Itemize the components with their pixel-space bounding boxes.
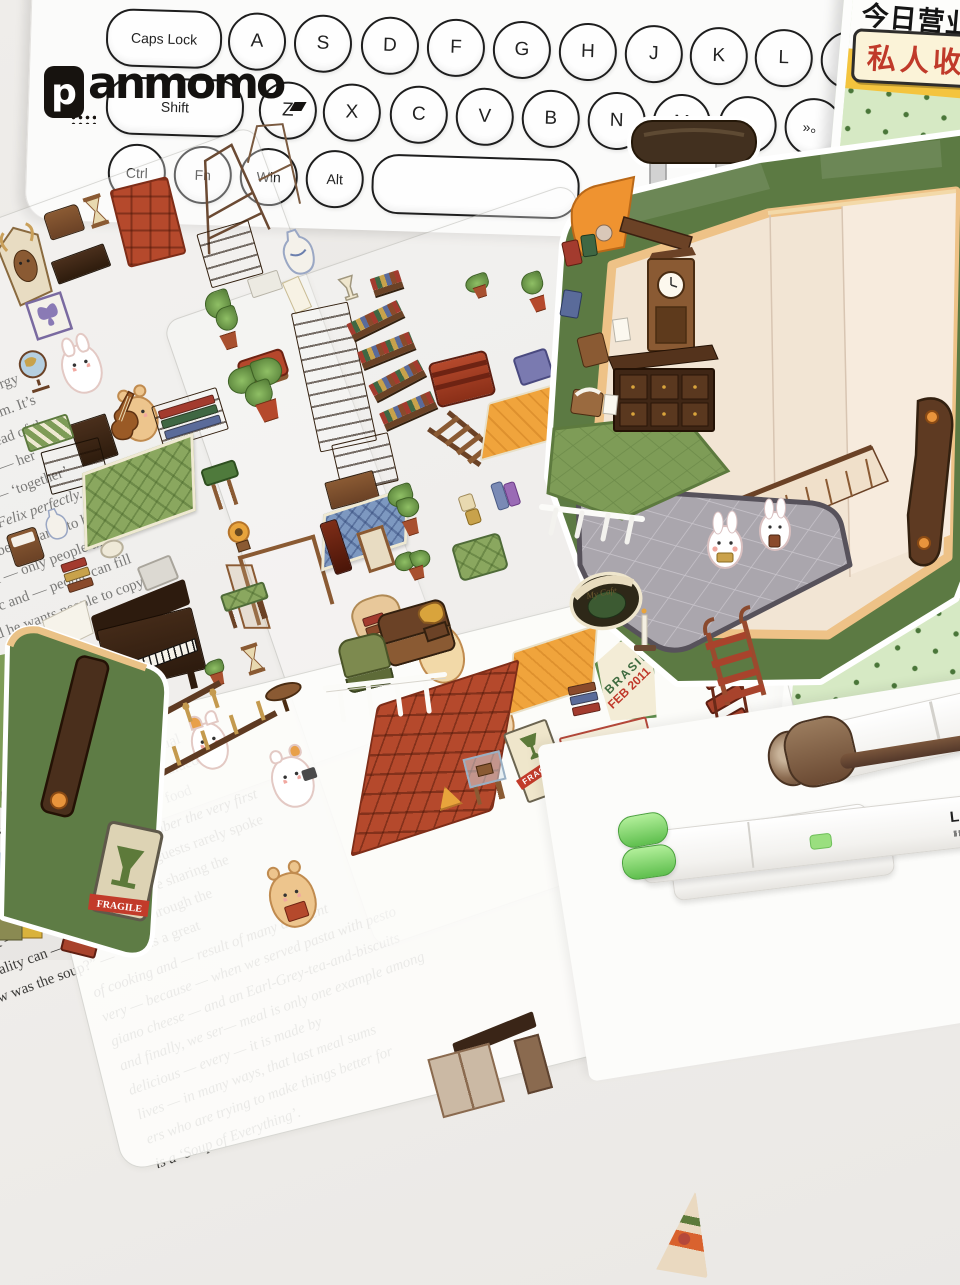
suitcase-corner-protector [572, 177, 634, 255]
brand-logo-mark: p [44, 66, 84, 118]
ticket-sticker [646, 1191, 708, 1285]
package-label: 私人收藏馆 [851, 28, 960, 92]
second-suitcase: FRAGILE [0, 616, 196, 961]
brand-logo-wordmark: anmomo [88, 58, 283, 109]
pen-logo-dot [809, 833, 833, 850]
brand-logo-dots [70, 114, 96, 124]
suitcase-box: My Cafe [520, 95, 960, 715]
dresser [608, 345, 718, 431]
grandfather-clock [648, 247, 696, 360]
